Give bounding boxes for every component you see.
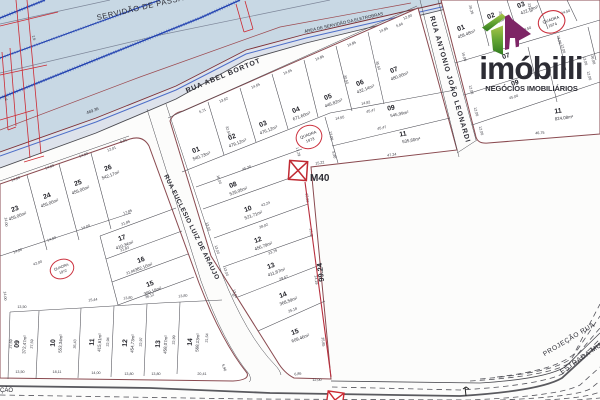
svg-text:27,59: 27,59: [30, 339, 35, 348]
svg-text:09: 09: [14, 340, 22, 348]
svg-text:14,00: 14,00: [3, 291, 8, 300]
svg-text:13,80: 13,80: [124, 372, 133, 376]
svg-text:31,54: 31,54: [205, 333, 210, 342]
svg-text:NEGÓCIOS IMOBILIÁRIOS: NEGÓCIOS IMOBILIÁRIOS: [485, 84, 578, 93]
svg-text:11: 11: [89, 338, 96, 346]
svg-text:32,94: 32,94: [106, 337, 111, 346]
svg-text:27,59: 27,59: [9, 339, 14, 348]
svg-text:13: 13: [155, 340, 163, 348]
svg-text:13,50: 13,50: [17, 305, 26, 309]
svg-text:12: 12: [122, 339, 130, 347]
svg-text:46,75: 46,75: [535, 131, 544, 136]
svg-text:18,11: 18,11: [53, 370, 62, 374]
svg-text:32,97: 32,97: [139, 337, 144, 346]
svg-text:11: 11: [554, 107, 562, 115]
svg-text:20,41: 20,41: [197, 372, 206, 376]
svg-text:12,00: 12,00: [312, 378, 321, 382]
svg-text:14,00: 14,00: [4, 217, 9, 226]
svg-text:26,43: 26,43: [73, 339, 78, 348]
svg-text:M40: M40: [310, 173, 330, 184]
svg-text:11: 11: [399, 130, 408, 138]
svg-text:10: 10: [50, 339, 58, 347]
svg-text:13,50: 13,50: [15, 370, 24, 374]
svg-text:ÇÃO: ÇÃO: [0, 387, 13, 394]
svg-text:14,00: 14,00: [91, 371, 100, 375]
svg-text:13,80: 13,80: [151, 372, 160, 376]
svg-text:14: 14: [187, 338, 195, 346]
svg-text:32,99: 32,99: [172, 335, 177, 344]
svg-text:imóbilli: imóbilli: [479, 50, 582, 86]
